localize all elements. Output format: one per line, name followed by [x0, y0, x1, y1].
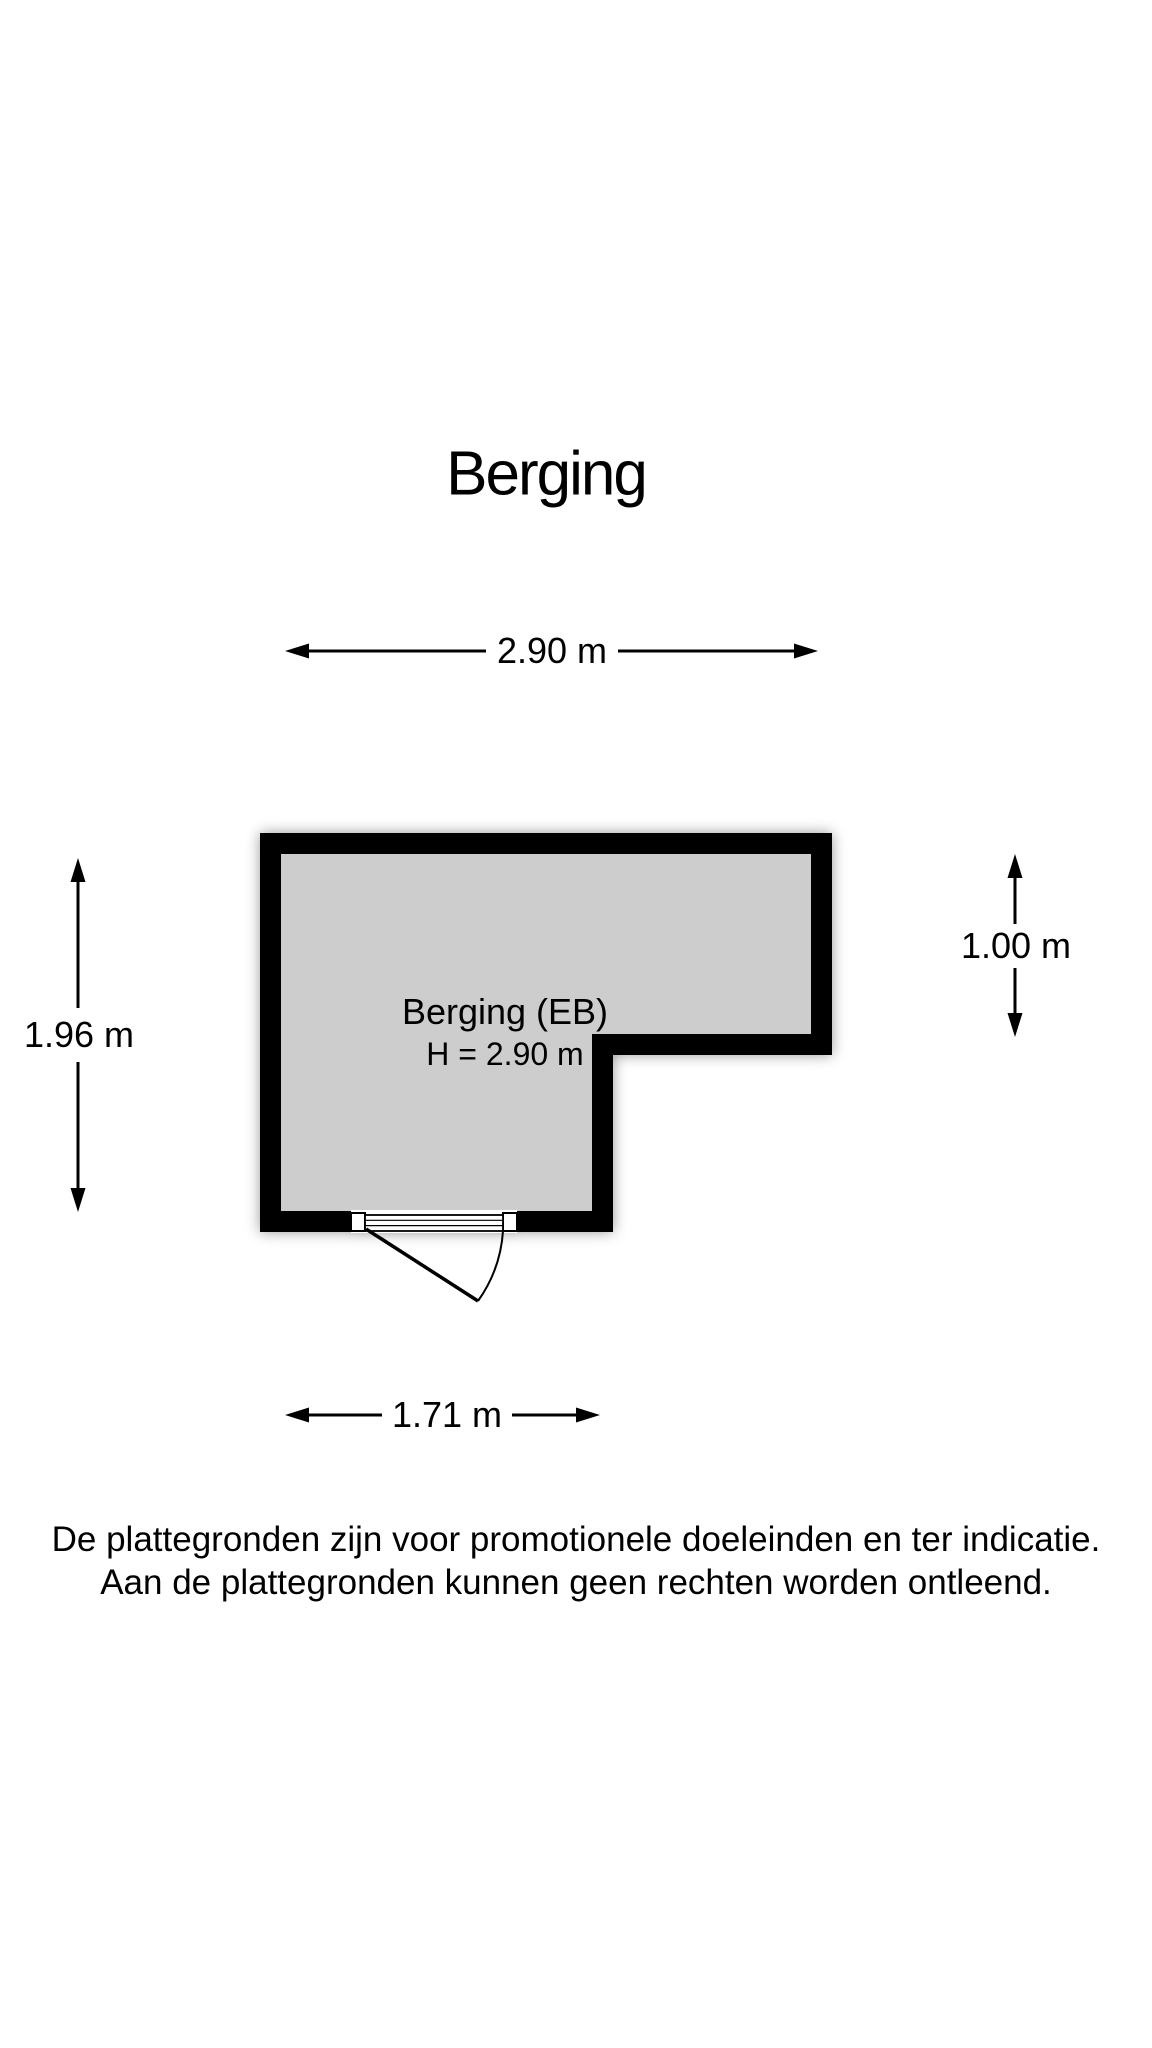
- dimension-label-top: 2.90 m: [491, 630, 613, 672]
- arrow-head-left: [285, 644, 309, 659]
- page-title: Berging: [446, 439, 646, 510]
- door-symbol: [351, 1213, 517, 1301]
- arrow-head-up: [1008, 854, 1023, 878]
- room-label: Berging (EB) H = 2.90 m: [402, 991, 608, 1075]
- floorplan-page: Berging 2.90 m 1.96 m 1.00 m 1.71 m Berg…: [0, 0, 1152, 2048]
- door-post-left: [351, 1213, 365, 1231]
- dimension-label-right: 1.00 m: [955, 925, 1077, 967]
- arrow-head-down: [71, 1188, 86, 1212]
- footer-disclaimer: De plattegronden zijn voor promotionele …: [0, 1518, 1152, 1604]
- arrow-head-down: [1008, 1013, 1023, 1037]
- footer-disclaimer-line1: De plattegronden zijn voor promotionele …: [0, 1518, 1152, 1561]
- dimension-label-bottom: 1.71 m: [386, 1394, 508, 1436]
- arrow-head-left: [285, 1408, 309, 1423]
- dimension-label-left: 1.96 m: [18, 1014, 140, 1056]
- room-height: H = 2.90 m: [402, 1033, 608, 1075]
- footer-disclaimer-line2: Aan de plattegronden kunnen geen rechten…: [0, 1561, 1152, 1604]
- door-leaf: [366, 1229, 478, 1301]
- room-name: Berging (EB): [402, 991, 608, 1033]
- arrow-head-right: [794, 644, 818, 659]
- door-post-right: [503, 1213, 517, 1231]
- arrow-head-right: [576, 1408, 600, 1423]
- arrow-head-up: [71, 858, 86, 882]
- door-threshold: [365, 1215, 503, 1231]
- door-swing-arc: [478, 1231, 503, 1301]
